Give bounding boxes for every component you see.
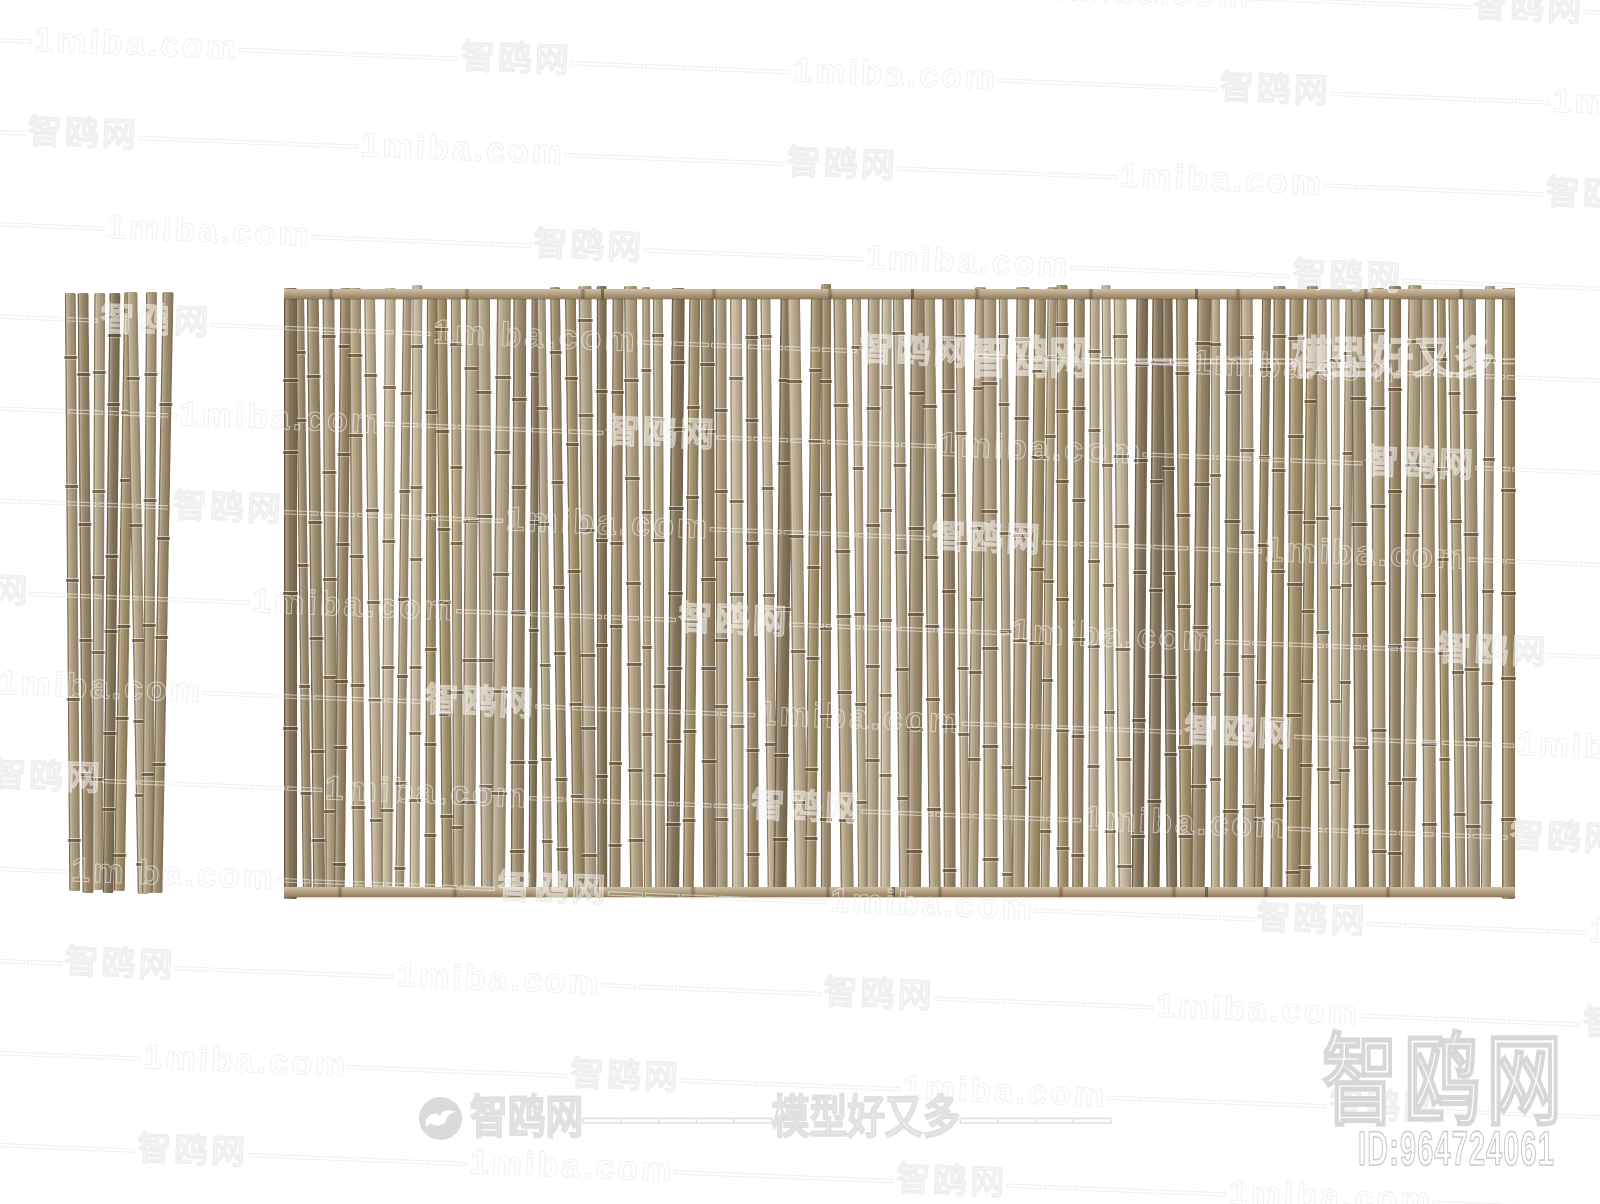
bamboo-node-ring [611,541,624,546]
bamboo-pole [510,296,526,897]
bamboo-node-ring [78,522,91,527]
bamboo-pole [1131,295,1147,895]
bamboo-node-ring [102,806,115,811]
bamboo-node-ring [1072,734,1085,739]
bamboo-node-ring [611,390,624,395]
bamboo-node-ring [1210,692,1221,697]
bamboo-node-ring [113,853,126,858]
bamboo-node-ring [808,439,821,444]
bamboo-node-ring [335,745,348,750]
rail-joint [1195,289,1198,299]
bamboo-node-ring [1501,488,1516,493]
bamboo-node-ring [1270,803,1284,808]
bamboo-node-ring [1162,571,1175,576]
bamboo-node-ring [143,623,156,628]
bamboo-node-ring [107,402,120,407]
bamboo-node-ring [92,574,105,579]
bamboo-node-ring [670,360,685,365]
bamboo-node-ring [1287,582,1303,587]
bamboo-node-ring [144,498,157,503]
bamboo-node-ring [701,666,716,671]
bamboo-node-ring [1354,825,1370,830]
bamboo-pole [1463,292,1481,897]
bamboo-node-ring [1178,744,1192,749]
bamboo-node-ring [653,539,665,544]
bamboo-node-ring [866,406,880,411]
bamboo-node-ring [1072,498,1085,503]
bamboo-pole [923,296,941,896]
bamboo-node-ring [436,327,449,332]
bamboo-node-ring [582,852,597,857]
bamboo-node-ring [537,406,548,411]
bamboo-node-ring [943,868,957,873]
bamboo-node-ring [1466,824,1482,829]
rail-joint [591,887,594,897]
bamboo-node-ring [478,658,493,663]
bamboo-node-ring [1013,533,1028,538]
bamboo-node-ring [927,807,941,812]
bamboo-node-ring [1113,334,1128,339]
bamboo-node-ring [1149,589,1163,594]
bamboo-node-ring [108,333,121,338]
bamboo-node-ring [79,638,92,643]
bamboo-node-ring [668,591,683,596]
bamboo-pole [1223,295,1240,894]
bamboo-node-ring [411,344,423,349]
bamboo-node-ring [731,724,745,729]
bamboo-node-ring [1056,409,1069,414]
bamboo-node-ring [1102,463,1113,468]
bamboo-node-ring [1056,322,1069,327]
rail-node [1088,289,1094,299]
bamboo-pole [410,285,423,897]
bamboo-node-ring [1298,865,1311,870]
rail-node [1385,887,1391,897]
bamboo-node-ring [382,539,395,544]
bamboo-node-ring [155,635,168,640]
bamboo-node-ring [1043,579,1054,584]
product-render-stage: 智鸥网——————1miba.com——————智鸥网——————1miba.c… [0,0,1600,1204]
rail-joint [601,289,604,299]
bamboo-node-ring [1352,634,1368,639]
bamboo-node-ring [1150,480,1164,485]
bamboo-node-ring [549,350,561,355]
bamboo-node-ring [666,822,681,827]
bamboo-node-ring [567,569,580,574]
bamboo-node-ring [450,342,462,347]
rail-node [1171,887,1177,897]
bamboo-node-ring [1163,675,1176,680]
bamboo-node-ring [129,523,142,528]
bamboo-node-ring [1388,387,1402,392]
bamboo-node-ring [579,413,594,418]
bamboo-node-ring [145,372,158,377]
watermark-row: 智鸥网——————1miba.com——————智鸥网——————1miba.c… [0,1101,1600,1204]
bamboo-node-ring [105,553,118,558]
bamboo-node-ring [715,409,728,414]
bamboo-node-ring [424,833,436,838]
bamboo-node-ring [463,518,478,523]
bamboo-node-ring [1192,624,1208,629]
bamboo-node-ring [104,629,117,634]
rail-node [1363,289,1369,299]
bamboo-node-ring [880,385,892,390]
bamboo-node-ring [1316,630,1329,635]
bamboo-node-ring [1439,757,1450,762]
bamboo-node-ring [451,690,463,695]
bamboo-node-ring [999,531,1010,536]
bamboo-node-ring [1270,717,1284,722]
bamboo-node-ring [1464,531,1480,536]
bamboo-node-ring [1351,397,1367,402]
bamboo-node-ring [909,391,925,396]
bamboo-node-ring [958,666,969,671]
bamboo-node-ring [1286,796,1302,801]
bamboo-pole [716,292,728,895]
bamboo-node-ring [716,818,729,823]
bamboo-node-ring [1271,568,1285,573]
bamboo-node-ring [1271,468,1285,473]
bamboo-node-ring [730,499,744,504]
bamboo-pole [642,287,652,896]
bamboo-node-ring [396,674,407,679]
bamboo-node-ring [310,635,324,640]
bamboo-node-ring [1088,645,1100,650]
bamboo-node-ring [115,715,128,720]
bamboo-node-ring [628,768,643,773]
bamboo-node-ring [715,557,728,562]
bamboo-node-ring [715,490,728,495]
bamboo-node-ring [476,390,491,395]
rail-node [580,289,586,299]
bamboo-pole [821,284,832,894]
bamboo-pole [1114,294,1132,896]
bamboo-node-ring [1330,699,1341,704]
bamboo-node-ring [566,442,579,447]
bamboo-node-ring [1001,765,1012,770]
bamboo-node-ring [491,791,507,796]
bamboo-node-ring [1012,638,1027,643]
bamboo-pole [492,291,512,892]
bamboo-node-ring [998,402,1009,407]
bamboo-node-ring [596,538,608,543]
bamboo-node-ring [348,353,362,358]
bamboo-node-ring [1101,356,1112,361]
bamboo-node-ring [462,800,477,805]
bamboo-node-ring [1224,519,1240,524]
bamboo-node-ring [1254,817,1265,822]
rail-node [1458,289,1464,299]
bamboo-pole [1176,293,1192,894]
watermark-row: 智鸥网——————1miba.com——————智鸥网——————1miba.c… [0,914,1600,1131]
bamboo-node-ring [1164,751,1177,756]
bamboo-strip-panel: 智鸥网——————1miba.com——————智鸥网——————1miba.c… [67,290,168,895]
bamboo-node-ring [463,658,478,663]
watermark-row: 智鸥网——————1miba.com——————智鸥网——————1miba.c… [0,0,1600,114]
bamboo-node-ring [1465,736,1481,741]
bamboo-node-ring [1210,582,1221,587]
bamboo-node-ring [1032,369,1046,374]
bamboo-node-ring [1339,768,1350,773]
bamboo-node-ring [496,375,512,380]
bamboo-node-ring [683,729,697,734]
bamboo-node-ring [1087,765,1099,770]
bamboo-node-ring [1116,647,1131,652]
bamboo-pole [462,295,479,896]
bamboo-node-ring [1438,651,1449,656]
bamboo-node-ring [686,495,700,500]
bamboo-node-ring [1256,681,1267,686]
bamboo-node-ring [351,805,365,810]
bamboo-node-ring [1210,473,1221,478]
bamboo-node-ring [301,792,312,797]
bamboo-node-ring [1088,429,1100,434]
bamboo-node-ring [1056,479,1069,484]
rail-node [1235,289,1241,299]
bamboo-pole [866,295,880,896]
bamboo-node-ring [1194,482,1210,487]
bamboo-pole [610,294,624,897]
bamboo-node-ring [1448,391,1460,396]
bamboo-node-ring [65,484,78,489]
bamboo-node-ring [1501,591,1516,596]
bamboo-node-ring [492,689,508,694]
bamboo-node-ring [1422,822,1437,827]
bamboo-node-ring [1330,505,1341,510]
bamboo-node-ring [820,492,832,497]
bamboo-node-ring [1302,608,1315,613]
bamboo-node-ring [1134,458,1148,463]
bamboo-pole [907,292,924,895]
bamboo-node-ring [746,540,759,545]
bamboo-pole [1088,292,1099,894]
bamboo-node-ring [440,712,453,717]
bamboo-node-ring [1483,359,1495,364]
bamboo-node-ring [1073,406,1086,411]
bamboo-node-ring [1133,570,1147,575]
bamboo-node-ring [1483,457,1495,462]
bamboo-node-ring [596,774,608,779]
bamboo-node-ring [1316,767,1329,772]
rail-joint [892,887,895,897]
bamboo-node-ring [1272,334,1286,339]
bamboo-node-ring [926,697,940,702]
bamboo-pole [1437,295,1451,896]
bamboo-pole [983,293,998,894]
bamboo-pole [730,296,744,892]
bamboo-node-ring [578,317,593,322]
bamboo-pole [666,288,685,896]
bamboo-node-ring [838,819,853,824]
bamboo-node-ring [957,541,968,546]
bamboo-node-ring [1465,667,1481,672]
bamboo-screen-panel: 智鸥网——————1miba.com——————智鸥网——————1miba.c… [284,289,1515,897]
bamboo-node-ring [982,645,998,650]
bamboo-node-ring [1480,800,1492,805]
bamboo-node-ring [908,612,924,617]
bamboo-node-ring [569,701,582,706]
bamboo-node-ring [1450,519,1462,524]
watermark-row: 智鸥网——————1miba.com——————智鸥网——————1miba.c… [0,1183,1600,1204]
bamboo-node-ring [1371,728,1386,733]
bamboo-node-ring [337,542,350,547]
bamboo-node-ring [1176,512,1190,517]
bamboo-node-ring [1370,405,1385,410]
bamboo-node-ring [1330,357,1341,362]
bamboo-node-ring [126,376,139,381]
bamboo-node-ring [1421,593,1436,598]
bamboo-node-ring [1501,817,1516,822]
bamboo-node-ring [730,376,744,381]
bamboo-node-ring [624,378,639,383]
bamboo-node-ring [866,523,880,528]
bamboo-pole [943,291,956,896]
bamboo-node-ring [425,647,437,652]
bamboo-node-ring [1330,585,1341,590]
bamboo-node-ring [77,372,90,377]
bamboo-node-ring [642,368,652,373]
rail-node [464,289,470,299]
bamboo-node-ring [1103,583,1114,588]
bamboo-node-ring [642,644,652,649]
bamboo-node-ring [529,629,539,634]
bamboo-node-ring [1388,644,1402,649]
bamboo-node-ring [1286,713,1302,718]
bamboo-node-ring [1118,864,1133,869]
bamboo-node-ring [66,578,79,583]
bamboo-pole [349,288,365,894]
bamboo-node-ring [1071,853,1084,858]
bamboo-node-ring [1114,454,1129,459]
bamboo-node-ring [1315,516,1328,521]
bamboo-node-ring [820,626,832,631]
bamboo-node-ring [424,741,436,746]
bamboo-node-ring [541,838,552,843]
bamboo-pole [1502,288,1515,899]
bamboo-node-ring [283,378,298,383]
bamboo-node-ring [283,726,298,731]
bamboo-node-ring [1403,637,1418,642]
bottom-rail [284,887,1515,897]
bamboo-node-ring [1300,763,1313,768]
bamboo-node-ring [1088,350,1100,355]
bamboo-node-ring [565,376,578,381]
bamboo-node-ring [367,600,380,605]
bamboo-node-ring [298,563,309,568]
rail-joint [911,289,914,299]
bamboo-node-ring [700,362,715,367]
bamboo-node-ring [308,520,322,525]
bamboo-node-ring [1352,522,1368,527]
rail-node [711,289,717,299]
bamboo-node-ring [627,662,642,667]
bamboo-node-ring [1501,396,1516,401]
bamboo-node-ring [1115,524,1130,529]
bamboo-node-ring [409,798,421,803]
bamboo-node-ring [1190,783,1206,788]
bamboo-pole [1240,292,1255,894]
bamboo-node-ring [652,417,664,422]
bamboo-node-ring [609,761,622,766]
bamboo-node-ring [510,760,525,765]
bamboo-node-ring [820,380,832,385]
rail-node [573,887,579,897]
rail-node [452,887,458,897]
bamboo-node-ring [1404,533,1419,538]
bamboo-pole [425,293,437,892]
bamboo-node-ring [1011,785,1026,790]
bamboo-node-ring [895,668,908,673]
bamboo-node-ring [1436,357,1447,362]
bamboo-pole [852,291,867,893]
bamboo-node-ring [157,536,170,541]
bamboo-node-ring [299,684,310,689]
bamboo-pole [1057,285,1069,896]
bamboo-node-ring [495,450,511,455]
top-rail [284,289,1515,299]
bamboo-node-ring [791,649,806,654]
bamboo-node-ring [1191,701,1207,706]
bamboo-node-ring [851,345,862,350]
bamboo-node-ring [1117,757,1132,762]
bamboo-node-ring [103,731,116,736]
bamboo-pole [1270,286,1285,897]
bamboo-node-ring [746,334,759,339]
bamboo-node-ring [1287,510,1303,515]
bamboo-node-ring [773,838,788,843]
bamboo-node-ring [983,744,999,749]
rail-node [1263,887,1269,897]
bamboo-node-ring [1406,340,1421,345]
rail-node [690,887,696,897]
bamboo-node-ring [866,759,880,764]
bamboo-node-ring [338,452,351,457]
bamboo-node-ring [153,762,166,767]
bamboo-node-ring [511,610,526,615]
bamboo-node-ring [670,426,685,431]
bamboo-node-ring [1240,448,1254,453]
bamboo-node-ring [763,593,775,598]
bamboo-pole [1351,294,1369,893]
bamboo-node-ring [450,465,462,470]
gull-logo-icon [419,1097,462,1140]
bamboo-node-ring [970,597,983,602]
rail-node [1058,887,1064,897]
bamboo-node-ring [1105,829,1116,834]
bamboo-node-ring [400,390,411,395]
bamboo-node-ring [1438,556,1449,561]
bamboo-node-ring [350,682,364,687]
bamboo-node-ring [1104,710,1115,715]
bamboo-node-ring [609,843,622,848]
bamboo-node-ring [761,486,773,491]
bamboo-node-ring [553,585,565,590]
bamboo-node-ring [669,506,684,511]
bamboo-pole [1011,287,1029,894]
bamboo-node-ring [131,638,144,643]
bamboo-node-ring [1056,597,1069,602]
bamboo-node-ring [538,522,549,527]
bamboo-node-ring [700,429,715,434]
bamboo-pole [597,286,607,895]
bamboo-node-ring [654,773,666,778]
bamboo-node-ring [1000,629,1011,634]
bamboo-node-ring [855,702,866,707]
bamboo-node-ring [437,429,450,434]
bamboo-node-ring [626,581,641,586]
bamboo-node-ring [1463,409,1479,414]
bamboo-node-ring [1370,328,1385,333]
